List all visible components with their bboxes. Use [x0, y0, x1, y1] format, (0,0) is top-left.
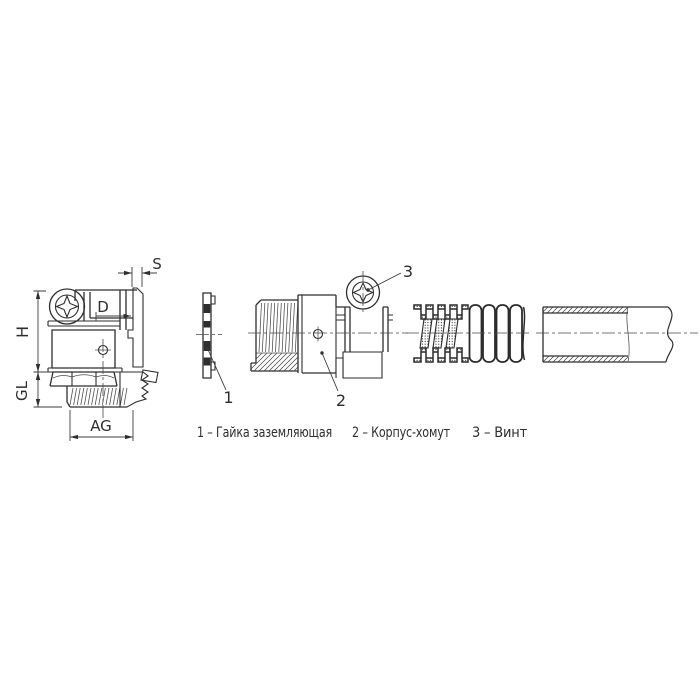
conduit-break-edge: [523, 307, 525, 360]
callout-3: 3: [366, 262, 413, 292]
flange-section: [128, 288, 143, 367]
phillips-screw-head: [50, 289, 85, 324]
legend-item-2: 2 – Корпус-хомут: [352, 425, 450, 441]
tube-walls: [543, 307, 668, 362]
hex-nut: [50, 372, 117, 386]
dimension-ag: AG: [70, 410, 133, 441]
conduit-convolution: [433, 319, 445, 348]
legend: 1 – Гайка заземляющая 2 – Корпус-хомут 3…: [197, 425, 527, 441]
conduit-ridge: [483, 305, 495, 362]
conduit-ridge: [470, 305, 482, 362]
base-section: [343, 352, 382, 378]
assembled-view: H GL S D AG: [13, 255, 162, 441]
tube-break-line: [666, 307, 673, 362]
thread-front: [67, 386, 127, 407]
dimension-s: S: [118, 255, 162, 287]
callout-3-label: 3: [403, 262, 413, 281]
conduit-view: [406, 305, 531, 362]
callout-1-label: 1: [223, 388, 233, 407]
callout-1: 1: [206, 346, 234, 407]
product-technical-drawing: H GL S D AG: [0, 0, 700, 700]
dimension-s-label: S: [152, 255, 162, 273]
male-thread-end: [251, 300, 298, 371]
dimension-ag-label: AG: [90, 417, 112, 435]
body-clamp-view: 2 3: [248, 262, 413, 410]
conduit-wall-top: [414, 305, 468, 319]
conduit-convolution: [446, 319, 458, 348]
conduit-ridge: [510, 305, 522, 362]
conduit-ridge: [497, 305, 509, 362]
dimension-h-label: H: [13, 326, 32, 338]
grounding-nut-view: 1: [196, 293, 234, 407]
conduit-wall-bottom: [414, 348, 468, 362]
body-block: [52, 330, 115, 368]
dimension-gl-label: GL: [13, 380, 31, 401]
dimension-d-label: D: [97, 298, 109, 316]
legend-item-1: 1 – Гайка заземляющая: [197, 425, 332, 441]
dimension-h: H: [13, 291, 49, 372]
clamp-arms: [345, 307, 388, 352]
legend-item-3: 3 – Винт: [472, 425, 527, 441]
conduit-convolution: [420, 319, 432, 348]
tube-section-boundary: [627, 307, 629, 362]
tube-view: [536, 307, 698, 362]
technical-drawing-svg: H GL S D AG: [0, 0, 700, 700]
callout-2-label: 2: [336, 391, 346, 410]
